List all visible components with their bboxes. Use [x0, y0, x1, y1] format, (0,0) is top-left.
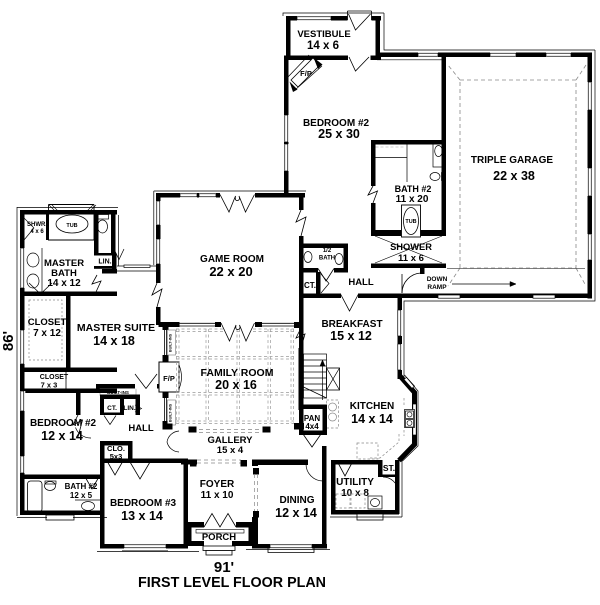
svg-text:22 x 20: 22 x 20: [209, 264, 252, 279]
svg-text:BATH #2: BATH #2: [65, 482, 98, 491]
svg-text:HALL: HALL: [128, 423, 154, 434]
svg-text:11 x 6: 11 x 6: [398, 253, 424, 264]
svg-text:BUILT-INS: BUILT-INS: [169, 403, 173, 422]
svg-text:BATH #2: BATH #2: [395, 184, 432, 194]
svg-text:LIN.: LIN.: [123, 405, 135, 412]
svg-text:KITCHEN: KITCHEN: [350, 401, 394, 412]
svg-text:11 x 10: 11 x 10: [201, 490, 234, 501]
svg-text:12 x 14: 12 x 14: [275, 506, 317, 520]
svg-text:LIN.: LIN.: [98, 259, 111, 266]
svg-text:TRIPLE GARAGE: TRIPLE GARAGE: [471, 155, 554, 166]
svg-text:BUILT-INS: BUILT-INS: [169, 333, 173, 352]
svg-text:SHWR.: SHWR.: [27, 222, 47, 228]
svg-text:CLOSET: CLOSET: [28, 317, 67, 328]
svg-text:7 x 3: 7 x 3: [41, 381, 58, 390]
svg-text:10 x 8: 10 x 8: [341, 488, 369, 499]
svg-text:VESTIBULE: VESTIBULE: [297, 29, 350, 40]
svg-text:12 x 5: 12 x 5: [70, 491, 93, 500]
svg-text:12 x 14: 12 x 14: [41, 429, 83, 443]
svg-text:RAMP: RAMP: [427, 284, 447, 291]
svg-text:ST.: ST.: [383, 463, 395, 473]
svg-text:F/P: F/P: [163, 374, 175, 383]
svg-text:F/P: F/P: [300, 69, 312, 78]
svg-text:UTILITY: UTILITY: [336, 477, 374, 488]
svg-text:CT.: CT.: [107, 405, 117, 412]
svg-text:15 x 4: 15 x 4: [217, 445, 244, 456]
svg-text:DINING: DINING: [280, 495, 315, 506]
svg-text:TUB: TUB: [66, 223, 77, 229]
svg-text:14 x 6: 14 x 6: [307, 40, 339, 52]
svg-text:PORCH: PORCH: [202, 532, 236, 543]
svg-text:BEDROOM #2: BEDROOM #2: [30, 418, 97, 429]
svg-text:BEDROOM #3: BEDROOM #3: [110, 498, 177, 509]
svg-text:4x4: 4x4: [305, 422, 319, 431]
svg-text:TUB: TUB: [405, 219, 416, 225]
svg-text:7 x 12: 7 x 12: [33, 328, 61, 339]
svg-text:FOYER: FOYER: [200, 479, 235, 490]
svg-text:CT.: CT.: [304, 281, 316, 290]
svg-text:20 x 16: 20 x 16: [215, 378, 257, 392]
svg-text:MASTER SUITE: MASTER SUITE: [77, 322, 155, 334]
svg-text:15 x 12: 15 x 12: [330, 329, 372, 343]
svg-text:91': 91': [214, 559, 234, 576]
svg-text:SHOWER: SHOWER: [390, 242, 432, 252]
svg-text:1/2: 1/2: [323, 248, 332, 254]
svg-text:14 x 14: 14 x 14: [351, 412, 393, 426]
svg-text:HALL: HALL: [348, 277, 374, 288]
svg-text:11 x 20: 11 x 20: [396, 194, 429, 205]
svg-text:86': 86': [0, 331, 17, 351]
svg-text:22 x 38: 22 x 38: [493, 169, 535, 183]
svg-text:13 x 14: 13 x 14: [121, 509, 163, 523]
svg-text:14 x 12: 14 x 12: [47, 278, 81, 289]
svg-text:14 x 18: 14 x 18: [93, 334, 135, 348]
svg-text:BATH: BATH: [319, 256, 335, 262]
svg-text:DOWN: DOWN: [427, 276, 448, 283]
svg-text:25 x 30: 25 x 30: [318, 127, 360, 141]
svg-text:FIRST LEVEL FLOOR PLAN: FIRST LEVEL FLOOR PLAN: [138, 575, 326, 591]
